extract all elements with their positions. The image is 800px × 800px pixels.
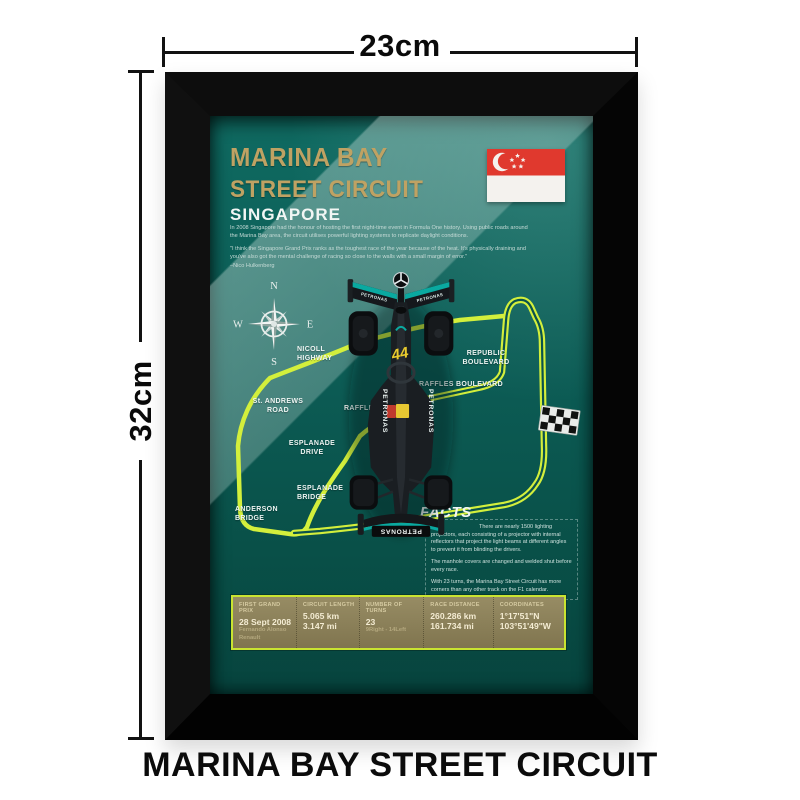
stat-number-of-turns: NUMBER OF TURNS 23 9Right - 14Left bbox=[359, 597, 424, 648]
road-label-st-andrews-road: St. ANDREWS ROAD bbox=[248, 397, 308, 415]
width-label: 23cm bbox=[330, 28, 470, 64]
poster: MARINA BAY STREET CIRCUIT SINGAPORE In 2… bbox=[210, 116, 593, 694]
sidepod-sponsor-right: PETRONAS bbox=[427, 389, 434, 433]
width-line-left bbox=[164, 51, 354, 54]
road-label-republic-boulevard: REPUBLIC BOULEVARD bbox=[453, 349, 519, 367]
picture-frame: MARINA BAY STREET CIRCUIT SINGAPORE In 2… bbox=[165, 72, 638, 740]
poster-title-line3: SINGAPORE bbox=[230, 205, 341, 225]
stat-race-distance: RACE DISTANCE 260.286 km 161.734 mi bbox=[423, 597, 493, 648]
height-line-top bbox=[139, 72, 142, 342]
product-image: 23cm 32cm MARINA BAY STREET CIRCUIT SING… bbox=[0, 0, 800, 800]
stat-circuit-length: CIRCUIT LENGTH 5.065 km 3.147 mi bbox=[296, 597, 359, 648]
poster-title-line2: STREET CIRCUIT bbox=[230, 176, 423, 204]
road-label-esplanade-drive: ESPLANADE DRIVE bbox=[283, 439, 341, 457]
sidepod-sponsor-left: PETRONAS bbox=[381, 389, 388, 433]
height-line-bottom bbox=[139, 460, 142, 738]
width-line-right bbox=[450, 51, 636, 54]
front-wing-sponsor: PETRONAS bbox=[380, 527, 422, 534]
fact-item: With 23 turns, the Marina Bay Street Cir… bbox=[431, 579, 572, 594]
f1-car-illustration: PETRONAS PETRONAS bbox=[340, 266, 462, 558]
front-wing: PETRONAS bbox=[358, 514, 445, 537]
road-label-anderson-bridge: ANDERSON BRIDGE bbox=[235, 505, 295, 523]
product-caption: MARINA BAY STREET CIRCUIT bbox=[0, 746, 800, 785]
singapore-flag-icon bbox=[487, 149, 565, 202]
intro-quote: "I think the Singapore Grand Prix ranks … bbox=[230, 246, 530, 261]
stat-coordinates: COORDINATES 1°17'51"N 103°51'49"W bbox=[493, 597, 564, 648]
checkered-flag-icon bbox=[538, 405, 580, 435]
mercedes-star-icon bbox=[393, 273, 408, 288]
intro-text: In 2008 Singapore had the honour of host… bbox=[230, 225, 530, 271]
intro-paragraph: In 2008 Singapore had the honour of host… bbox=[230, 225, 530, 240]
height-label: 32cm bbox=[123, 341, 159, 461]
poster-title-line1: MARINA BAY bbox=[230, 142, 388, 173]
circuit-stats-table: FIRST GRAND PRIX 28 Sept 2008 Fernando A… bbox=[231, 595, 566, 650]
stat-first-grand-prix: FIRST GRAND PRIX 28 Sept 2008 Fernando A… bbox=[233, 597, 296, 648]
fact-item: The manhole covers are changed and welde… bbox=[431, 559, 572, 574]
